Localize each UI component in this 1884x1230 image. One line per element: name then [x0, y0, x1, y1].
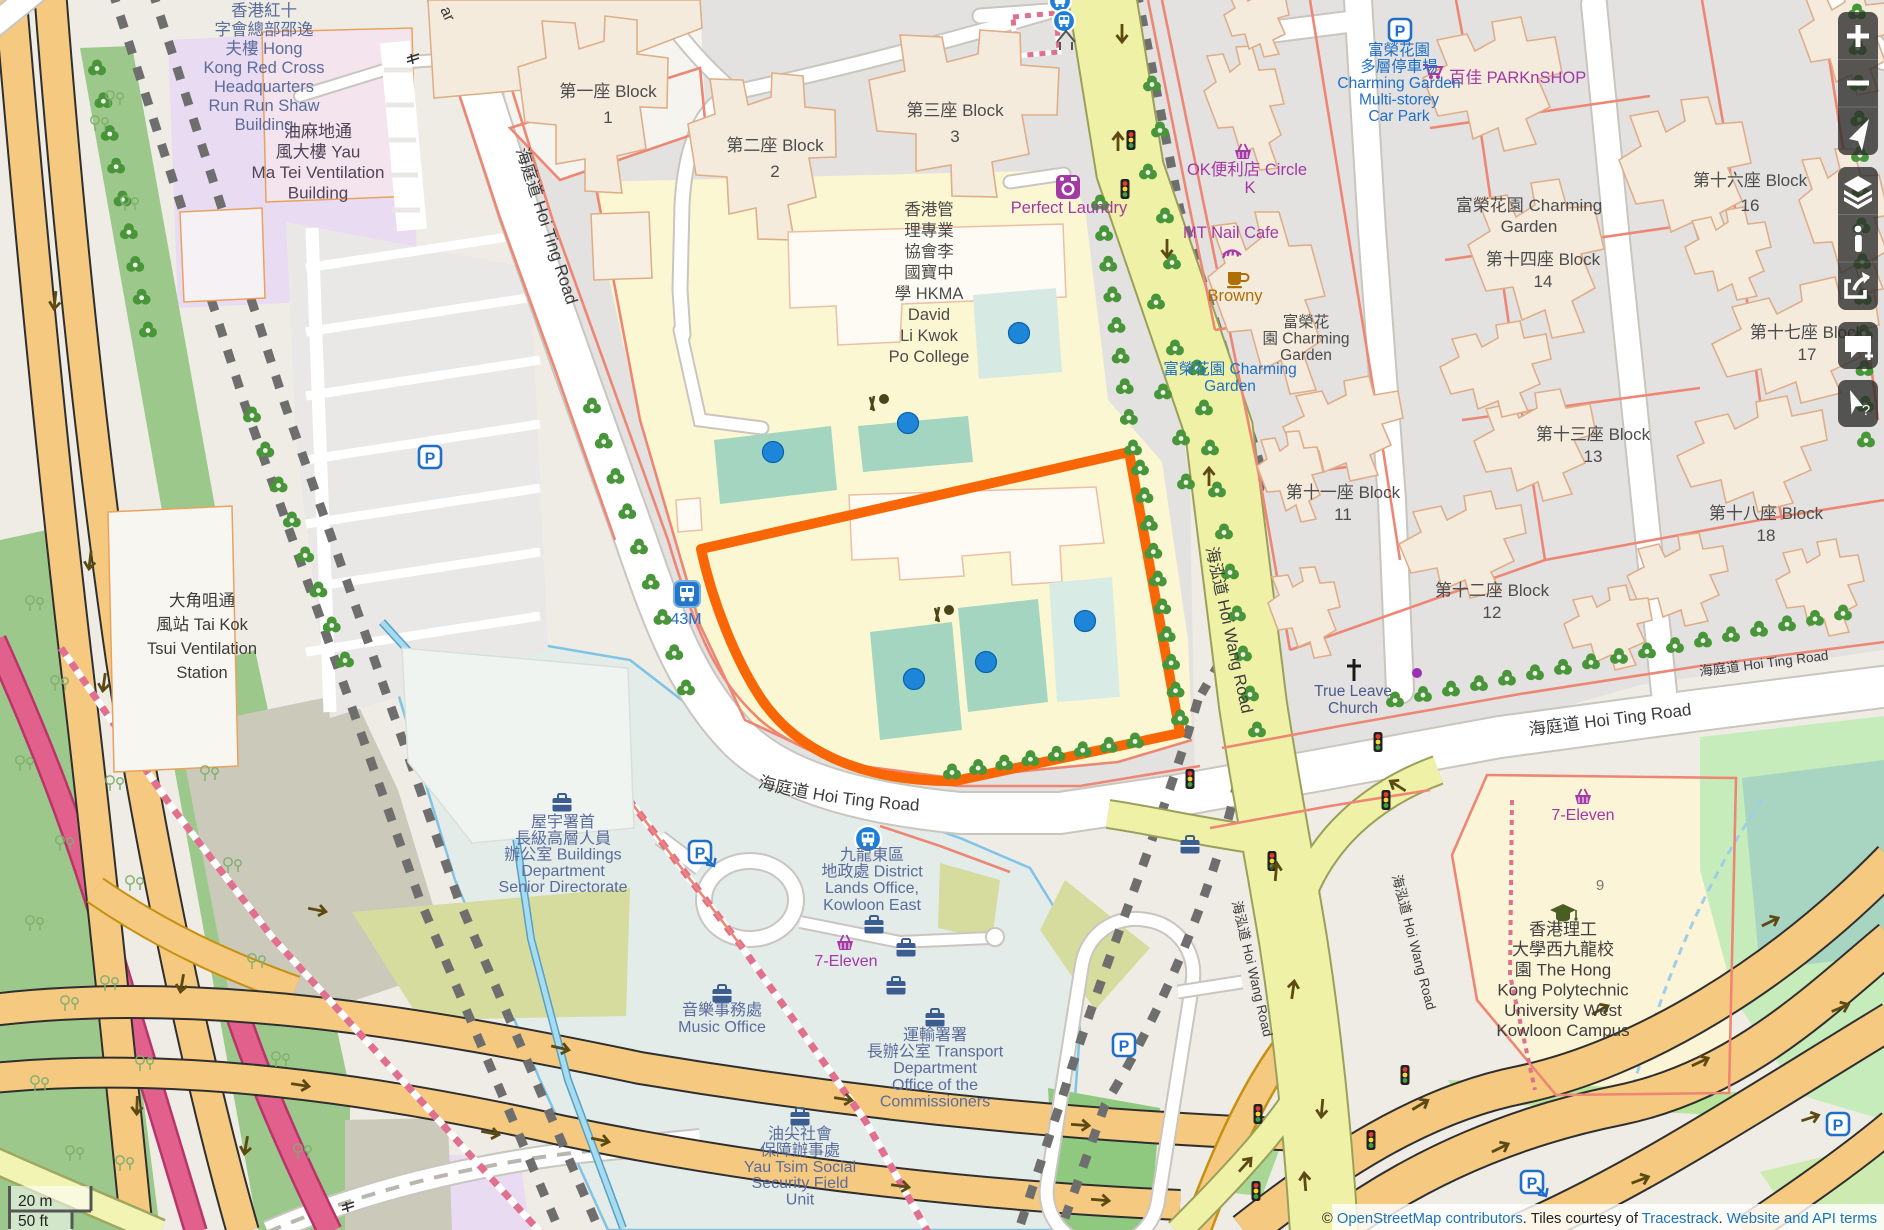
svg-text:字會總部邵逸: 字會總部邵逸: [215, 20, 314, 39]
svg-text:43M: 43M: [670, 611, 701, 628]
svg-text:夫樓 Hong: 夫樓 Hong: [225, 39, 302, 58]
svg-text:P: P: [1833, 1118, 1844, 1135]
svg-text:9: 9: [1596, 877, 1604, 894]
svg-text:P: P: [1395, 24, 1406, 41]
svg-text:K: K: [1244, 179, 1255, 197]
svg-text:OK便利店 Circle: OK便利店 Circle: [1187, 160, 1307, 179]
svg-text:Senior Directorate: Senior Directorate: [499, 879, 628, 896]
svg-text:13: 13: [1584, 447, 1603, 466]
svg-text:Department: Department: [893, 1060, 977, 1077]
svg-text:7-Eleven: 7-Eleven: [1551, 807, 1614, 824]
svg-text:富榮花園: 富榮花園: [1368, 41, 1430, 59]
svg-text:Office of the: Office of the: [892, 1077, 978, 1094]
svg-text:50 ft: 50 ft: [18, 1213, 49, 1230]
svg-text:7-Eleven: 7-Eleven: [814, 953, 877, 970]
svg-text:Headquarters: Headquarters: [214, 78, 314, 96]
svg-text:油麻地通: 油麻地通: [284, 122, 352, 141]
svg-text:第二座 Block: 第二座 Block: [726, 136, 824, 155]
svg-text:地政處 District: 地政處 District: [821, 863, 923, 881]
svg-text:第十八座 Block: 第十八座 Block: [1709, 504, 1824, 523]
svg-text:Department: Department: [521, 863, 605, 880]
svg-text:長級高層人員: 長級高層人員: [515, 829, 611, 847]
svg-text:MT Nail Cafe: MT Nail Cafe: [1183, 224, 1279, 242]
svg-text:P: P: [425, 451, 436, 468]
svg-text:Browny: Browny: [1207, 287, 1263, 305]
svg-text:P: P: [1527, 1176, 1538, 1193]
svg-text:香港理工: 香港理工: [1529, 920, 1597, 939]
svg-text:園 The Hong: 園 The Hong: [1515, 960, 1611, 979]
svg-text:Commissioners: Commissioners: [880, 1093, 990, 1110]
svg-text:Kong Red Cross: Kong Red Cross: [203, 59, 324, 77]
svg-text:第十三座 Block: 第十三座 Block: [1536, 425, 1651, 444]
svg-text:第十六座 Block: 第十六座 Block: [1693, 171, 1808, 190]
svg-text:第十二座 Block: 第十二座 Block: [1435, 581, 1550, 600]
svg-text:Kowloon East: Kowloon East: [823, 897, 921, 914]
svg-text:2: 2: [770, 162, 779, 181]
svg-text:Li Kwok: Li Kwok: [900, 327, 959, 345]
svg-text:富榮花: 富榮花: [1283, 313, 1330, 331]
svg-text:University West: University West: [1504, 1001, 1622, 1020]
svg-text:Security Field: Security Field: [752, 1175, 849, 1192]
svg-text:11: 11: [1334, 505, 1352, 524]
svg-text:協會李: 協會李: [904, 242, 954, 261]
svg-text:16: 16: [1741, 196, 1760, 215]
svg-text:Building: Building: [288, 184, 349, 203]
svg-text:12: 12: [1483, 603, 1502, 622]
svg-text:Yau Tsim Social: Yau Tsim Social: [744, 1159, 856, 1176]
svg-text:David: David: [908, 306, 950, 324]
svg-text:Garden: Garden: [1501, 217, 1558, 236]
svg-text:Run Run Shaw: Run Run Shaw: [209, 97, 320, 115]
svg-text:Church: Church: [1328, 700, 1378, 717]
svg-text:Multi-storey: Multi-storey: [1359, 92, 1439, 109]
svg-text:富榮花園 Charming: 富榮花園 Charming: [1456, 196, 1602, 215]
svg-text:國寶中: 國寶中: [904, 262, 954, 282]
svg-text:第十四座 Block: 第十四座 Block: [1486, 250, 1601, 269]
svg-text:園 Charming: 園 Charming: [1263, 331, 1350, 348]
svg-text:3: 3: [950, 127, 959, 146]
svg-text:屋宇署首: 屋宇署首: [531, 813, 595, 831]
svg-text:Kowloon Campus: Kowloon Campus: [1496, 1021, 1629, 1040]
svg-text:風大樓 Yau: 風大樓 Yau: [276, 143, 361, 162]
svg-text:風站 Tai Kok: 風站 Tai Kok: [156, 615, 248, 634]
svg-text:?: ?: [1862, 402, 1870, 419]
svg-text:Kong Polytechnic: Kong Polytechnic: [1497, 981, 1629, 1000]
svg-text:保障辦事處: 保障辦事處: [760, 1141, 840, 1159]
svg-text:Car Park: Car Park: [1368, 108, 1429, 125]
svg-text:P: P: [1119, 1039, 1130, 1056]
svg-text:© OpenStreetMap contributors.: © OpenStreetMap contributors. Tiles cour…: [1322, 1211, 1877, 1227]
svg-text:Garden: Garden: [1204, 378, 1256, 395]
svg-text:百佳 PARKnSHOP: 百佳 PARKnSHOP: [1449, 68, 1586, 87]
svg-text:第一座 Block: 第一座 Block: [559, 82, 657, 101]
svg-text:油尖社會: 油尖社會: [768, 1125, 832, 1143]
svg-text:理專業: 理專業: [904, 221, 954, 240]
svg-text:1: 1: [603, 108, 612, 127]
svg-text:香港紅十: 香港紅十: [231, 1, 297, 20]
svg-text:14: 14: [1534, 272, 1553, 291]
svg-text:音樂事務處: 音樂事務處: [682, 1001, 762, 1019]
svg-text:Ma Tei Ventilation: Ma Tei Ventilation: [252, 163, 385, 182]
svg-text:True Leave: True Leave: [1314, 683, 1392, 700]
svg-text:P: P: [695, 846, 706, 863]
svg-text:學 HKMA: 學 HKMA: [895, 284, 964, 303]
svg-text:多層停車場: 多層停車場: [1360, 58, 1438, 76]
svg-text:第十一座 Block: 第十一座 Block: [1286, 483, 1401, 502]
svg-text:20 m: 20 m: [18, 1193, 52, 1210]
svg-text:17: 17: [1798, 345, 1817, 364]
svg-text:富榮花園 Charming: 富榮花園 Charming: [1163, 360, 1297, 378]
svg-text:18: 18: [1757, 526, 1776, 545]
svg-text:Lands Office,: Lands Office,: [825, 880, 919, 897]
svg-text:長辦公室 Transport: 長辦公室 Transport: [867, 1043, 1004, 1061]
svg-text:Perfect Laundry: Perfect Laundry: [1011, 199, 1128, 217]
svg-text:Tsui Ventilation: Tsui Ventilation: [147, 640, 257, 658]
svg-text:辦公室 Buildings: 辦公室 Buildings: [504, 846, 621, 864]
svg-text:大角咀通: 大角咀通: [169, 591, 235, 610]
svg-text:運輸署署: 運輸署署: [903, 1026, 967, 1044]
svg-text:Station: Station: [176, 664, 227, 682]
svg-text:Unit: Unit: [786, 1192, 815, 1209]
svg-text:Music Office: Music Office: [678, 1019, 766, 1036]
svg-text:Charming Garden: Charming Garden: [1337, 75, 1460, 92]
svg-text:大學西九龍校: 大學西九龍校: [1512, 940, 1614, 959]
svg-text:Po College: Po College: [889, 348, 970, 366]
svg-text:九龍東區: 九龍東區: [840, 846, 904, 864]
svg-text:第三座 Block: 第三座 Block: [906, 101, 1004, 120]
svg-text:香港管: 香港管: [904, 200, 954, 219]
